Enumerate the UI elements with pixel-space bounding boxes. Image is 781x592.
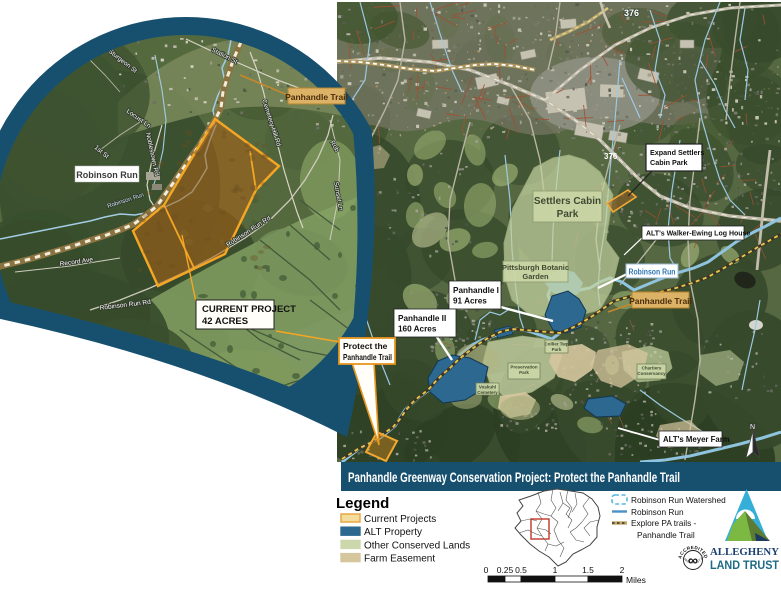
svg-text:0.5: 0.5 — [515, 565, 527, 575]
svg-text:Conservancy: Conservancy — [637, 371, 666, 376]
svg-text:Legend: Legend — [336, 495, 389, 512]
svg-text:Voskuhl: Voskuhl — [479, 385, 496, 390]
svg-text:1.5: 1.5 — [582, 565, 594, 575]
svg-text:Other Conserved Lands: Other Conserved Lands — [364, 540, 470, 551]
svg-text:Chartiers: Chartiers — [642, 366, 662, 371]
svg-text:CURRENT PROJECT: CURRENT PROJECT — [202, 304, 296, 315]
svg-text:Panhandle II: Panhandle II — [398, 314, 446, 323]
svg-text:Settlers Cabin: Settlers Cabin — [534, 196, 601, 207]
svg-text:Cemetery: Cemetery — [477, 390, 498, 395]
svg-text:ALT Property: ALT Property — [364, 527, 422, 538]
svg-text:Park: Park — [557, 209, 579, 220]
svg-text:LAND TRUST: LAND TRUST — [710, 558, 780, 572]
svg-text:ALT's Walker-Ewing Log House: ALT's Walker-Ewing Log House — [646, 231, 750, 238]
svg-text:Robinson Run: Robinson Run — [76, 170, 138, 180]
svg-text:Panhandle Trail: Panhandle Trail — [343, 352, 392, 362]
svg-text:Panhandle Greenway Conservatio: Panhandle Greenway Conservation Project:… — [348, 470, 680, 485]
svg-text:1: 1 — [553, 565, 558, 575]
svg-text:Robinson Run: Robinson Run — [629, 268, 676, 277]
svg-text:Panhandle Trail: Panhandle Trail — [285, 92, 348, 102]
svg-text:Panhandle Trail: Panhandle Trail — [629, 296, 692, 306]
svg-text:160 Acres: 160 Acres — [398, 324, 437, 333]
svg-text:Miles: Miles — [626, 575, 646, 585]
svg-text:Robinson Run: Robinson Run — [631, 507, 684, 517]
svg-text:Expand Settlers: Expand Settlers — [650, 148, 704, 157]
svg-text:Collier Twp: Collier Twp — [545, 342, 569, 347]
svg-text:Park: Park — [552, 347, 562, 352]
svg-text:ALT's Meyer Farm: ALT's Meyer Farm — [663, 435, 730, 444]
svg-text:Explore PA trails -: Explore PA trails - — [631, 518, 697, 528]
svg-text:376: 376 — [624, 8, 639, 18]
svg-text:Protect the: Protect the — [343, 341, 388, 351]
svg-text:Panhandle Trail: Panhandle Trail — [637, 530, 695, 540]
svg-text:Preservation: Preservation — [510, 365, 538, 370]
svg-text:Farm Easement: Farm Easement — [364, 554, 435, 565]
svg-text:ALLEGHENY: ALLEGHENY — [710, 547, 780, 558]
svg-text:Robinson Run Watershed: Robinson Run Watershed — [631, 495, 726, 505]
svg-text:Panhandle I: Panhandle I — [453, 286, 499, 295]
svg-text:Cabin Park: Cabin Park — [650, 158, 688, 167]
svg-text:Pittsburgh Botanic: Pittsburgh Botanic — [502, 263, 569, 272]
svg-text:91 Acres: 91 Acres — [453, 296, 487, 305]
svg-text:0.25: 0.25 — [497, 565, 514, 575]
svg-text:Garden: Garden — [522, 272, 549, 281]
svg-text:376: 376 — [604, 152, 618, 161]
svg-text:0: 0 — [484, 565, 489, 575]
svg-text:Park: Park — [519, 370, 529, 375]
svg-text:42 ACRES: 42 ACRES — [202, 316, 248, 327]
svg-text:N: N — [750, 424, 755, 431]
svg-text:2: 2 — [620, 565, 625, 575]
svg-text:Current Projects: Current Projects — [364, 514, 436, 525]
